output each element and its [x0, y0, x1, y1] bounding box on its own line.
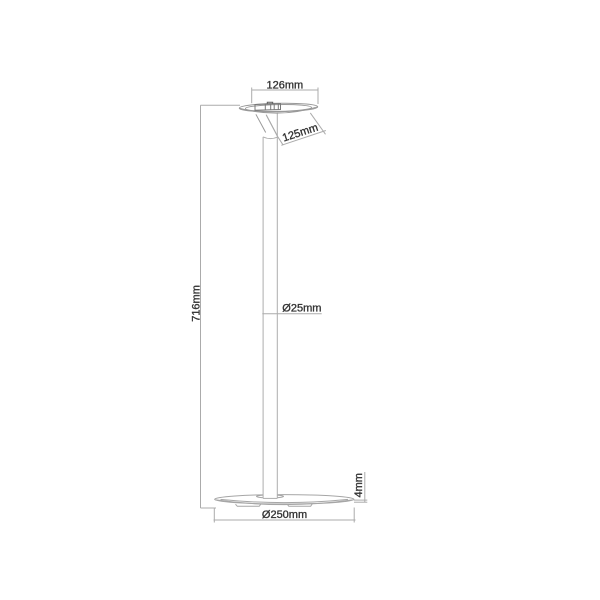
- svg-text:716mm: 716mm: [191, 285, 203, 322]
- svg-text:126mm: 126mm: [267, 79, 304, 91]
- svg-text:4mm: 4mm: [353, 473, 365, 497]
- svg-text:Ø25mm: Ø25mm: [282, 303, 321, 315]
- svg-text:125mm: 125mm: [281, 122, 320, 145]
- svg-text:Ø250mm: Ø250mm: [262, 509, 307, 521]
